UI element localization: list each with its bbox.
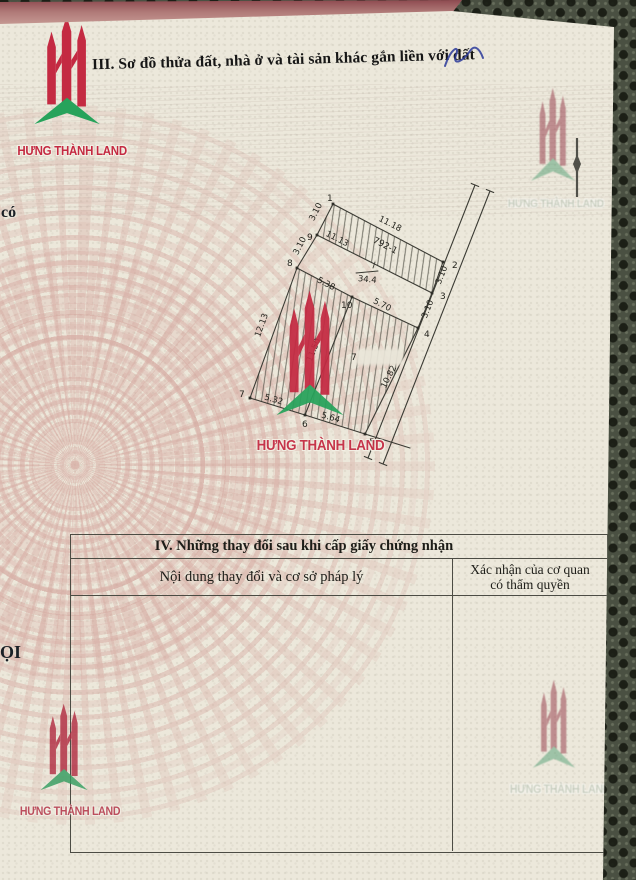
column-header-changes: Nội dung thay đổi và cơ sở pháp lý <box>71 559 453 595</box>
confirmation-line2: có thẩm quyền <box>490 577 569 592</box>
parcel-edge <box>432 262 443 293</box>
photographed-land-certificate: III. Sơ đồ thửa đất, nhà ở và tài sản kh… <box>0 0 636 880</box>
parcel-edge <box>418 293 432 328</box>
hung-thanh-land-watermark: HƯNG THÀNH LAND <box>16 702 112 818</box>
blue-pen-mark <box>441 42 489 76</box>
brand-towers-icon <box>33 702 95 806</box>
vertex-number: 2 <box>452 261 458 271</box>
measurement-label: 3.10 <box>434 265 450 286</box>
measurement-label: 11.18 <box>377 214 403 234</box>
measurement-label: 792-1 <box>371 236 399 257</box>
brand-name: HƯNG THÀNH LAND <box>20 806 108 818</box>
measurement-label: 3.10 <box>420 299 436 320</box>
brand-name: HƯNG THÀNH LAND <box>510 784 598 796</box>
certificate-paper: III. Sơ đồ thửa đất, nhà ở và tài sản kh… <box>0 0 636 880</box>
hung-thanh-land-watermark: HƯNG THÀNH LAND <box>252 288 368 454</box>
hung-thanh-land-watermark: HƯNG THÀNH LAND <box>504 86 602 210</box>
section3-title: III. Sơ đồ thửa đất, nhà ở và tài sản kh… <box>92 44 572 75</box>
confirmation-line1: Xác nhận của cơ quan <box>470 562 590 577</box>
brand-towers-icon <box>524 86 582 198</box>
vertex-dot <box>417 327 420 330</box>
section4-title: IV. Những thay đổi sau khi cấp giấy chứn… <box>71 535 607 559</box>
brand-name: HƯNG THÀNH LAND <box>257 438 364 454</box>
cutoff-text-fragment-top: có <box>1 204 16 222</box>
brand-towers-icon <box>24 14 110 144</box>
column-header-confirmation: Xác nhận của cơ quan có thẩm quyền <box>453 559 607 595</box>
cutoff-text-fragment-bottom: ỌI <box>0 642 21 663</box>
brand-towers-icon <box>526 678 582 784</box>
brand-name: HƯNG THÀNH LAND <box>17 144 116 158</box>
changes-cell-empty <box>71 596 453 851</box>
hung-thanh-land-watermark: HƯNG THÀNH LAND <box>506 678 602 796</box>
vertex-dot <box>431 292 434 295</box>
vertex-dot <box>442 261 445 264</box>
hung-thanh-land-watermark: HƯNG THÀNH LAND <box>13 14 121 158</box>
vertex-number: 4 <box>424 330 430 340</box>
brand-name: HƯNG THÀNH LAND <box>508 198 598 210</box>
brand-towers-icon <box>266 288 354 438</box>
table-header-row: Nội dung thay đổi và cơ sở pháp lý Xác n… <box>71 559 607 596</box>
vertex-number: 3 <box>440 292 446 302</box>
